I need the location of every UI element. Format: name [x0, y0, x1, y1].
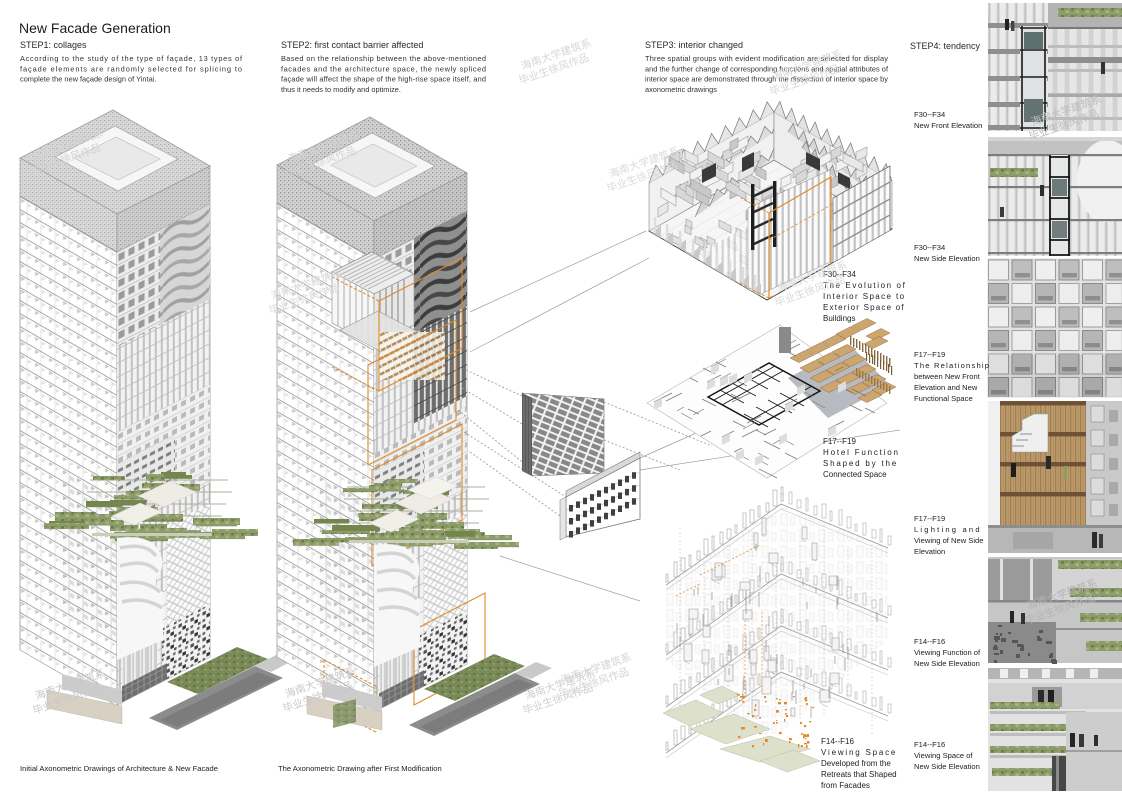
svg-text:axonometric drawings: axonometric drawings [645, 85, 717, 94]
svg-text:Initial Axonometric Drawings o: Initial Axonometric Drawings of Architec… [20, 764, 218, 773]
svg-text:Three spatial groups with evid: Three spatial groups with evident modifi… [645, 54, 888, 63]
svg-text:New Side Elevation: New Side Elevation [914, 254, 980, 263]
svg-text:Functional Space: Functional Space [914, 394, 973, 403]
svg-text:STEP1: collages: STEP1: collages [20, 40, 87, 50]
svg-text:Retreats that Shaped: Retreats that Shaped [821, 770, 897, 779]
svg-text:Elevation: Elevation [914, 547, 945, 556]
svg-text:STEP3: interior changed: STEP3: interior changed [645, 40, 743, 50]
svg-text:Viewing Space: Viewing Space [821, 748, 897, 757]
svg-text:Buildings: Buildings [823, 314, 855, 323]
svg-text:F30--F34: F30--F34 [914, 243, 945, 252]
svg-text:thus it needs to modify and op: thus it needs to modify and optimize. [281, 85, 401, 94]
svg-text:F14--F16: F14--F16 [821, 737, 854, 746]
svg-text:F14--F16: F14--F16 [914, 740, 945, 749]
svg-text:between New Front: between New Front [914, 372, 981, 381]
svg-text:façade elements are randomly s: façade elements are randomly selected fo… [20, 64, 242, 73]
svg-text:Based on the relationship betw: Based on the relationship between the ab… [281, 54, 486, 63]
svg-text:F17--F19: F17--F19 [914, 350, 945, 359]
svg-text:Elevation and New: Elevation and New [914, 383, 978, 392]
svg-text:STEP2: first contact barrier a: STEP2: first contact barrier affected [281, 40, 423, 50]
svg-text:Viewing Space of: Viewing Space of [914, 751, 973, 760]
svg-text:New Side Elevation: New Side Elevation [914, 659, 980, 668]
svg-text:facades and the architecture s: facades and the architecture space, the … [281, 64, 486, 73]
svg-text:interior space are demonstrate: interior space are demonstrated through … [645, 75, 888, 84]
svg-text:STEP4: tendency: STEP4: tendency [910, 41, 981, 51]
svg-text:F17--F19: F17--F19 [914, 514, 945, 523]
svg-text:According to the study of the: According to the study of the type of fa… [20, 54, 243, 63]
svg-text:The Axonometric Drawing after: The Axonometric Drawing after First Modi… [278, 764, 442, 773]
svg-text:Lighting and: Lighting and [914, 525, 982, 534]
svg-text:F17--F19: F17--F19 [823, 437, 856, 446]
svg-text:New Facade Generation: New Facade Generation [19, 20, 171, 36]
svg-text:complete the new façade design: complete the new façade design of Yintai… [20, 75, 156, 84]
svg-text:The Relationship: The Relationship [914, 361, 990, 370]
svg-text:F30--F34: F30--F34 [914, 110, 945, 119]
svg-text:from Facades: from Facades [821, 781, 870, 790]
svg-text:Developed from the: Developed from the [821, 759, 891, 768]
svg-text:Viewing of New Side: Viewing of New Side [914, 536, 984, 545]
svg-text:Viewing Function of: Viewing Function of [914, 648, 981, 657]
svg-text:Shaped by the: Shaped by the [823, 459, 898, 468]
svg-text:and the further change of corr: and the further change of corresponding … [645, 64, 889, 73]
svg-text:F14--F16: F14--F16 [914, 637, 945, 646]
svg-text:façade will affect the shape o: façade will affect the shape of the high… [281, 75, 486, 84]
svg-text:Connected Space: Connected Space [823, 470, 887, 479]
svg-text:New Front Elevation: New Front Elevation [914, 121, 982, 130]
svg-text:Hotel Function: Hotel Function [823, 448, 900, 457]
svg-text:New Side Elevation: New Side Elevation [914, 762, 980, 771]
svg-text:Exterior Space of: Exterior Space of [823, 303, 905, 312]
svg-text:Interior Space to: Interior Space to [823, 292, 906, 301]
